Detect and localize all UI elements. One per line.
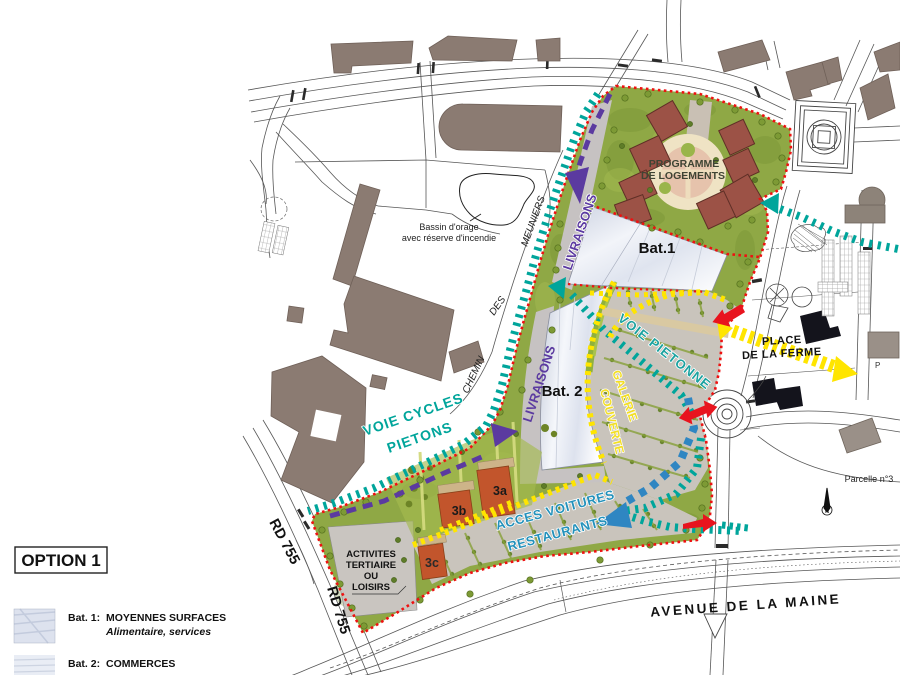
svg-text:Bat. 2:: Bat. 2: xyxy=(68,658,100,670)
svg-text:PLACE: PLACE xyxy=(762,334,802,348)
svg-text:TERTIAIRE: TERTIAIRE xyxy=(346,560,396,571)
svg-text:PROGRAMME: PROGRAMME xyxy=(649,158,720,170)
svg-text:P: P xyxy=(875,361,880,370)
svg-text:3c: 3c xyxy=(425,556,439,570)
svg-text:OPTION 1: OPTION 1 xyxy=(21,551,100,570)
svg-text:avec réserve d'incendie: avec réserve d'incendie xyxy=(402,233,496,243)
svg-text:Alimentaire, services: Alimentaire, services xyxy=(105,626,211,638)
svg-text:Bat.1: Bat.1 xyxy=(639,240,676,257)
svg-text:COMMERCES: COMMERCES xyxy=(106,658,175,670)
svg-text:3a: 3a xyxy=(493,484,508,498)
svg-text:ACTIVITES: ACTIVITES xyxy=(346,549,396,560)
svg-text:Bat. 1:: Bat. 1: xyxy=(68,612,100,624)
svg-text:DE LOGEMENTS: DE LOGEMENTS xyxy=(641,170,725,182)
svg-text:3b: 3b xyxy=(452,504,467,518)
svg-text:Bassin d'orage: Bassin d'orage xyxy=(419,222,478,232)
svg-text:LOISIRS: LOISIRS xyxy=(352,582,390,593)
svg-text:N: N xyxy=(825,509,829,515)
svg-text:OU: OU xyxy=(364,571,378,582)
svg-text:Bat. 2: Bat. 2 xyxy=(542,383,583,400)
svg-text:MOYENNES SURFACES: MOYENNES SURFACES xyxy=(106,612,226,624)
svg-text:Parcelle n°3: Parcelle n°3 xyxy=(845,474,894,484)
